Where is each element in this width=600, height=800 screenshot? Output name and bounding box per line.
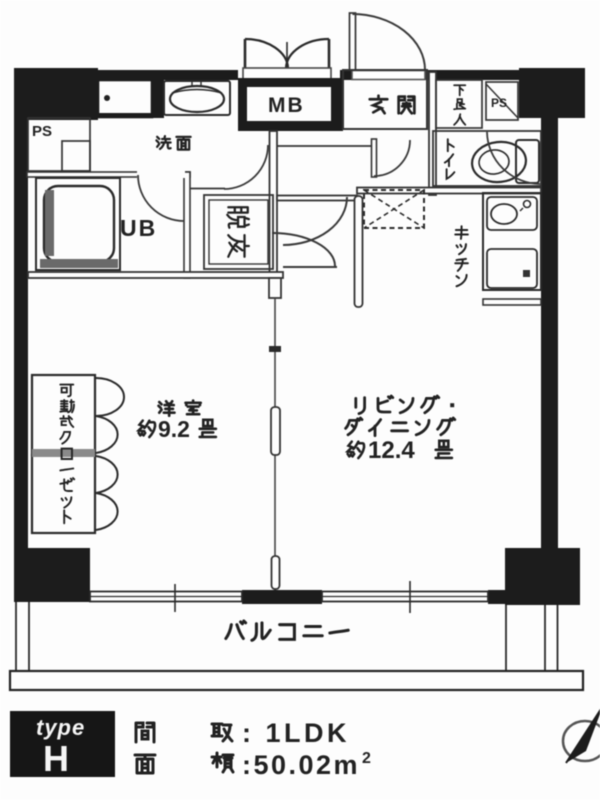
svg-text:type: type [36, 715, 85, 740]
svg-text:PS: PS [32, 123, 52, 140]
svg-text:MB: MB [268, 94, 305, 117]
svg-text:UB: UB [120, 215, 157, 241]
svg-text:PS: PS [491, 96, 507, 110]
svg-text:9.2: 9.2 [158, 416, 190, 442]
svg-text::50.02m: :50.02m [242, 750, 360, 780]
svg-text:2: 2 [362, 750, 371, 767]
svg-text:: 1LDK: : 1LDK [242, 718, 350, 748]
svg-text:12.4: 12.4 [368, 437, 415, 464]
svg-text:H: H [43, 738, 69, 779]
